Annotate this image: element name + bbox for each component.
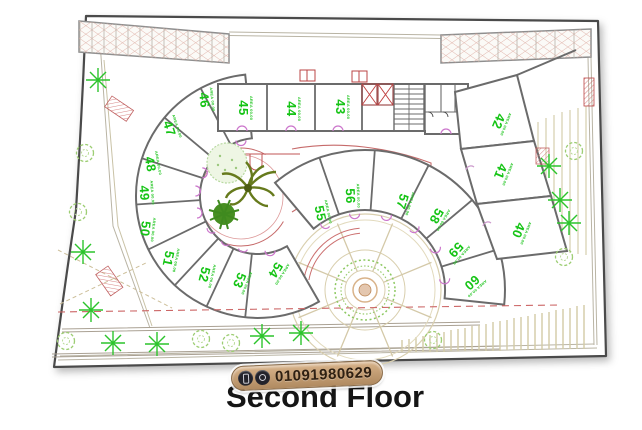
phone-icon xyxy=(238,370,254,386)
light-tree-icon xyxy=(207,143,247,183)
phone-number: 01091980629 xyxy=(275,364,373,385)
parking-strip-right xyxy=(441,29,591,63)
whatsapp-icon xyxy=(255,370,271,386)
flyer-page: AREA 00.0040 AREA 00.0041 AREA 00.0042 A… xyxy=(0,0,642,430)
top-shops-row xyxy=(218,84,468,134)
